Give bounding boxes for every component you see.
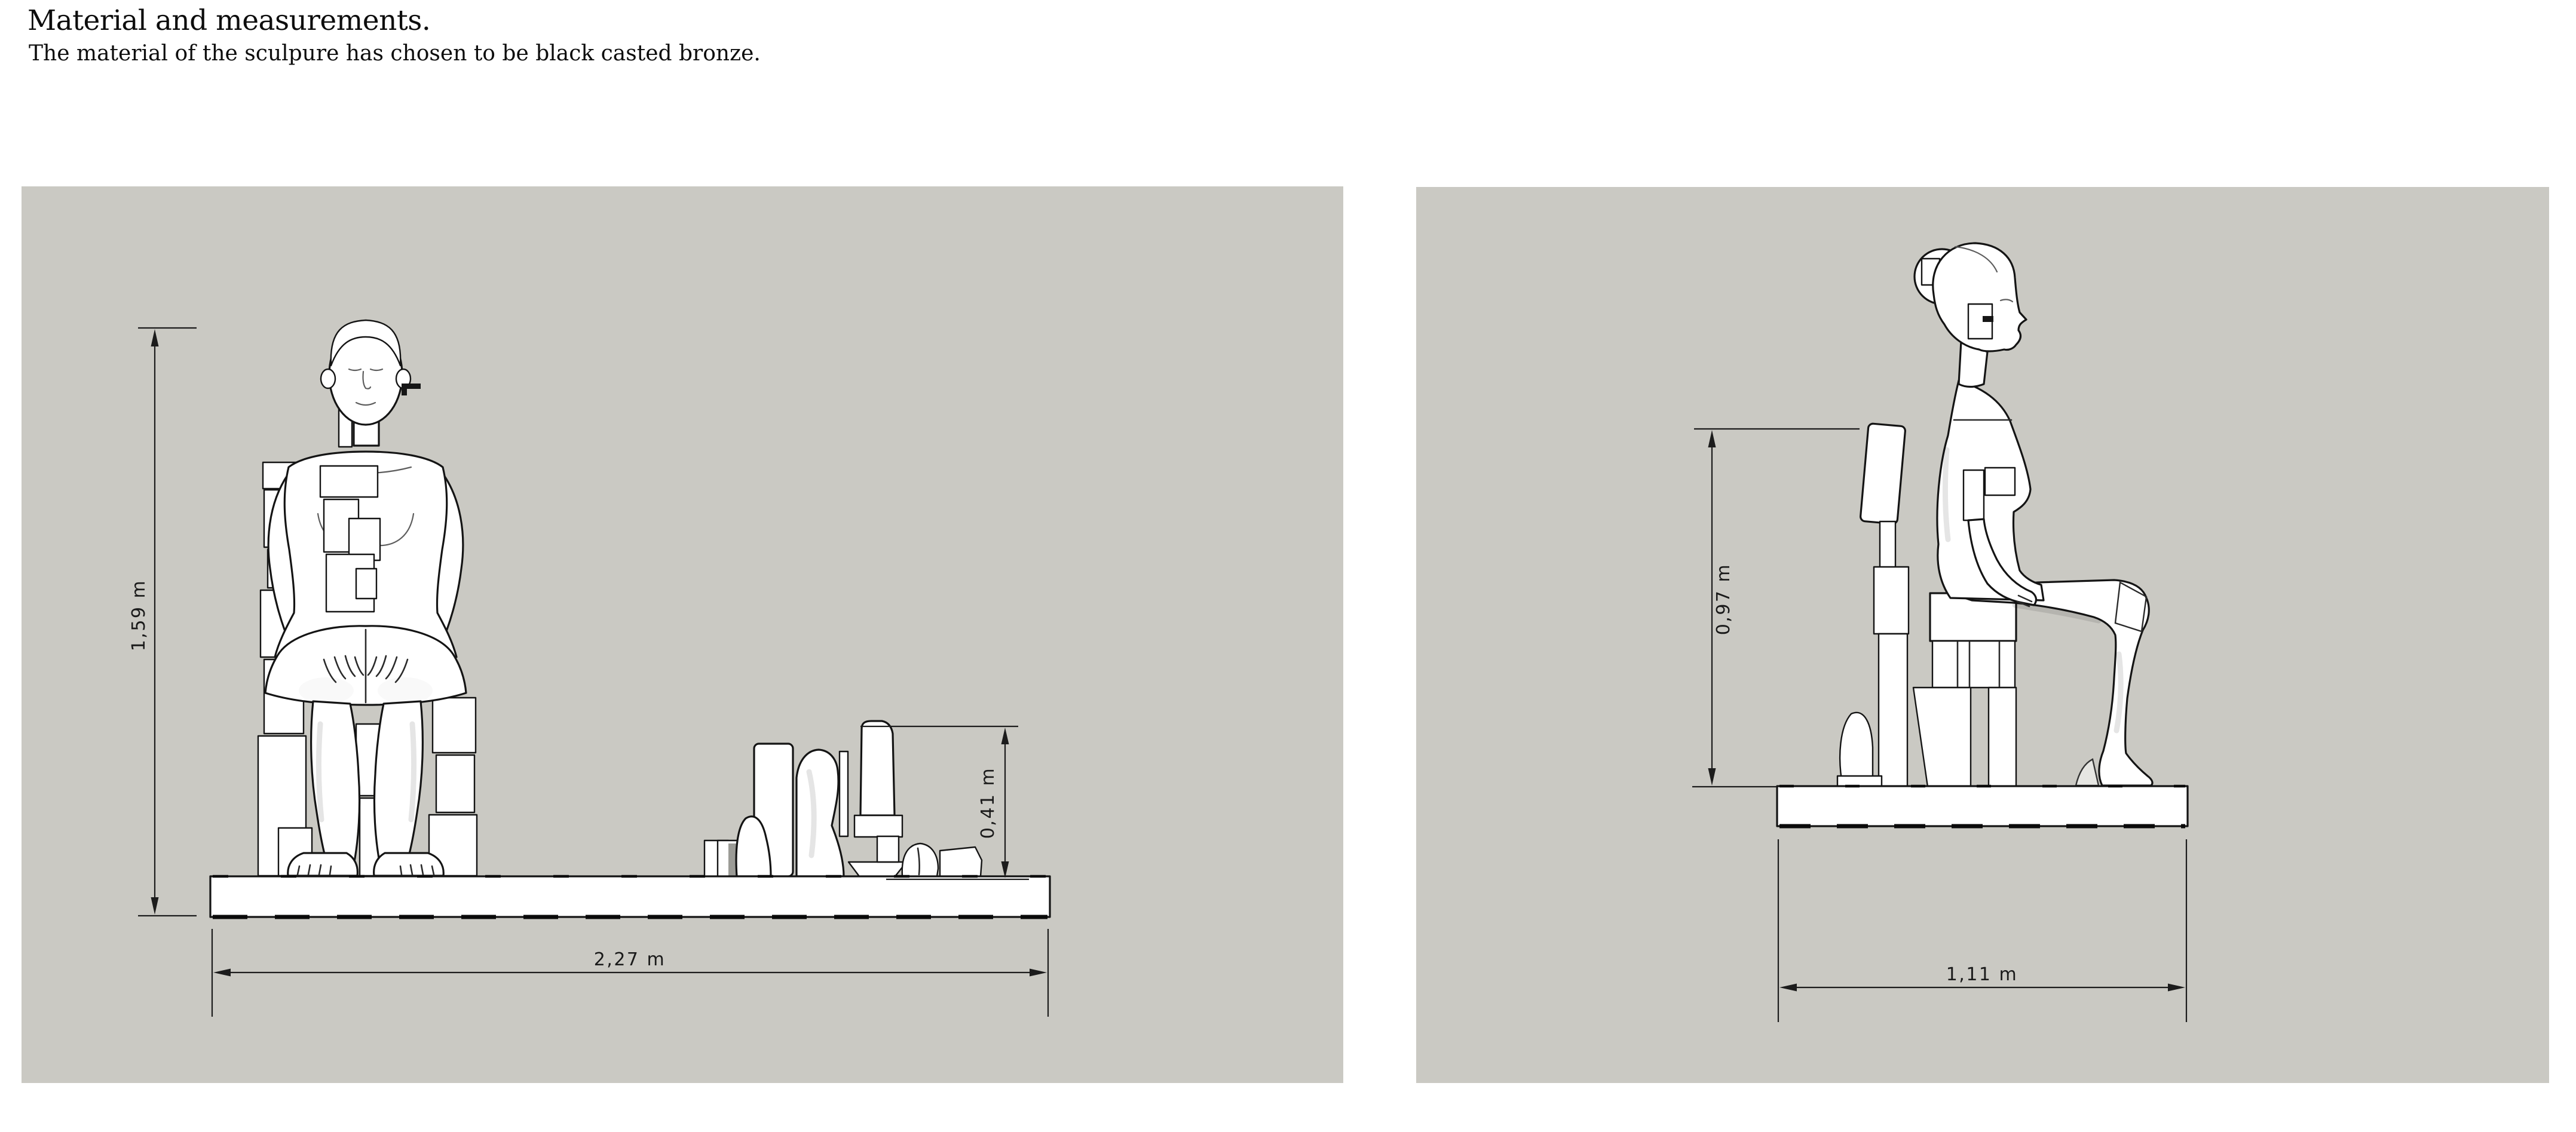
document-page: Material and measurements. The material …: [0, 0, 2576, 1132]
rubble-fragments: [705, 721, 982, 876]
dim-base-width: 2,27 m: [212, 929, 1048, 1017]
side-view-drawing: 0,97 m 1,11 m: [1416, 187, 2549, 1083]
base-slab-side: [1777, 786, 2188, 826]
dim-label-base-width: 2,27 m: [594, 949, 666, 970]
cheek-block-mark: [402, 384, 421, 395]
dim-chair-back-height: 0,97 m: [1692, 429, 1860, 787]
dim-label-total-height: 1,59 m: [128, 579, 149, 652]
dim-label-fragment-height: 0,41 m: [978, 767, 998, 839]
header-block: Material and measurements. The material …: [27, 5, 761, 66]
dim-label-base-depth: 1,11 m: [1946, 964, 2018, 985]
dim-total-height: 1,59 m: [128, 328, 197, 916]
side-view-panel: 0,97 m 1,11 m: [1416, 187, 2549, 1083]
front-view-panel: 1,59 m 0,41 m 2,27 m: [22, 186, 1343, 1083]
base-slab-front: [210, 876, 1050, 917]
front-view-drawing: 1,59 m 0,41 m 2,27 m: [22, 186, 1343, 1083]
dim-label-chair-back-height: 0,97 m: [1713, 563, 1734, 636]
page-title: Material and measurements.: [27, 5, 761, 37]
page-subtitle: The material of the sculpure has chosen …: [29, 41, 761, 66]
dim-base-depth: 1,11 m: [1778, 839, 2186, 1022]
